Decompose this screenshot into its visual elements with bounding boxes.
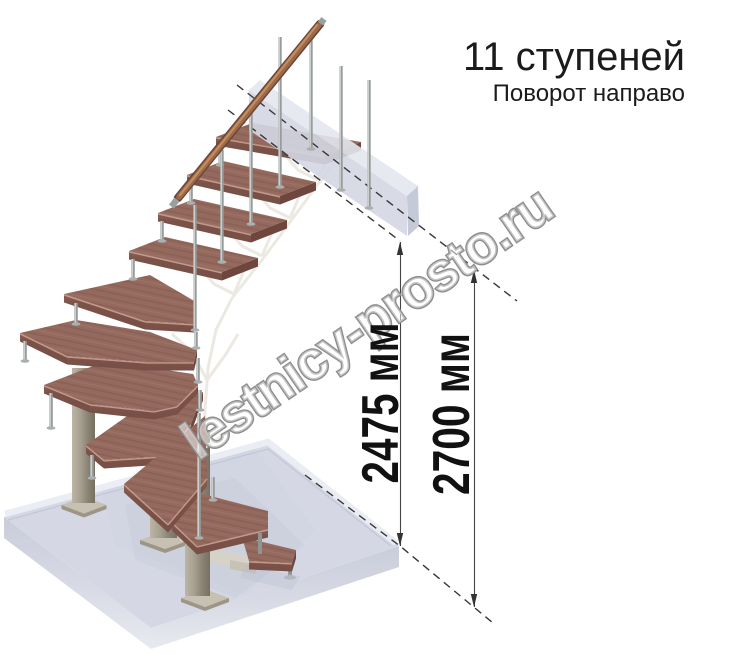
svg-text:2475 мм: 2475 мм xyxy=(352,323,410,484)
svg-text:11 ступеней: 11 ступеней xyxy=(463,35,685,79)
svg-text:2700 мм: 2700 мм xyxy=(423,333,481,495)
svg-text:Поворот направо: Поворот направо xyxy=(493,80,685,107)
